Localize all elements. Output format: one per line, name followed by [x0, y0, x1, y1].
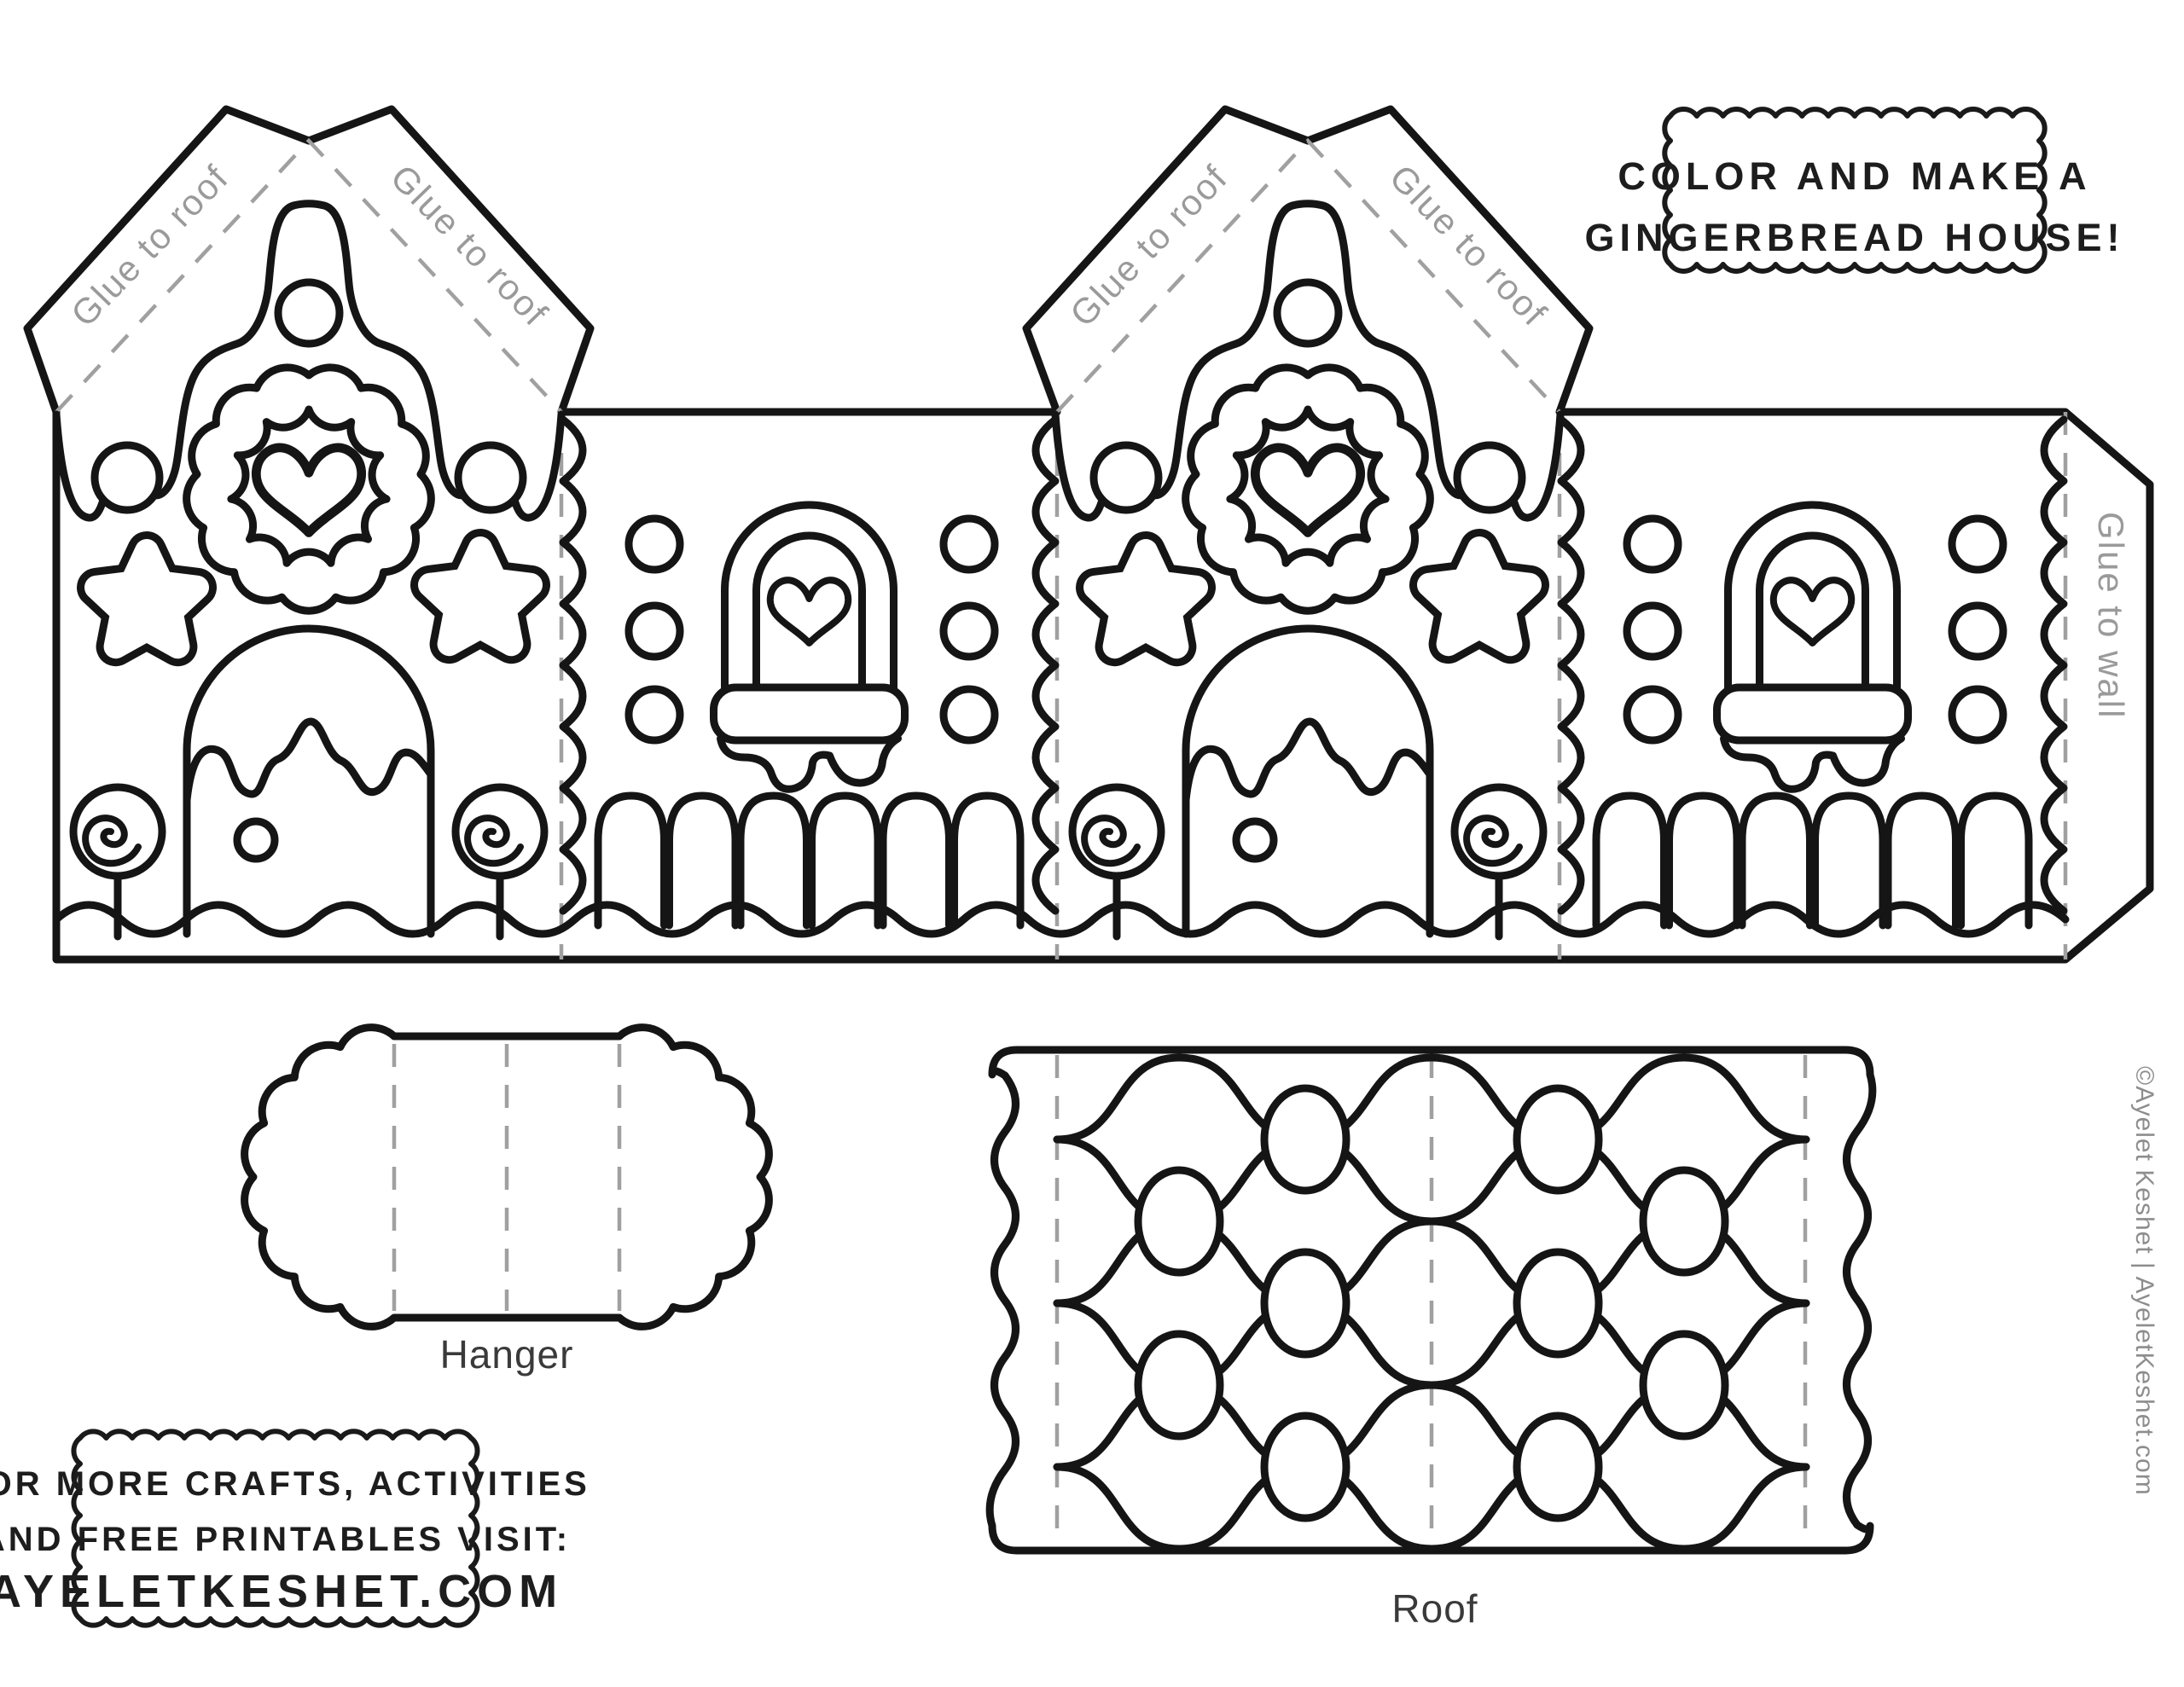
copyright-credit: ©Ayelet Keshet | AyeletKeshet.com [2130, 1066, 2158, 1496]
glue-to-roof-label-2: Glue to roof [383, 157, 556, 334]
printable-page: Glue to roof Glue to roof Glue to roof G… [0, 0, 2184, 1687]
footer-line1: FOR MORE CRAFTS, ACTIVITIES [0, 1465, 590, 1503]
footer-line2: AND FREE PRINTABLES VISIT: [0, 1521, 571, 1558]
footer-line3: AYELETKESHET.COM [0, 1566, 563, 1617]
roof-folds [1057, 1055, 1805, 1545]
hanger-folds [394, 1044, 619, 1311]
hanger-piece: Hanger [245, 1028, 770, 1377]
footer-info-box: FOR MORE CRAFTS, ACTIVITIES AND FREE PRI… [0, 1431, 590, 1625]
roof-piece: Roof [990, 1050, 1873, 1631]
glue-to-roof-label-4: Glue to roof [1382, 157, 1555, 334]
bottom-icing [56, 905, 2065, 934]
header-note-line1: COLOR AND MAKE A [1618, 154, 2091, 198]
header-note-line2: GINGERBREAD HOUSE! [1584, 216, 2124, 259]
hanger-label: Hanger [440, 1332, 574, 1377]
header-note-box: COLOR AND MAKE A GINGERBREAD HOUSE! [1584, 109, 2124, 271]
glue-to-wall-label: Glue to wall [2091, 512, 2131, 719]
bottom-icing-wave [56, 905, 2065, 934]
gingerbread-template-drawing: Glue to roof Glue to roof Glue to roof G… [0, 0, 2184, 1687]
roof-label: Roof [1391, 1586, 1478, 1631]
